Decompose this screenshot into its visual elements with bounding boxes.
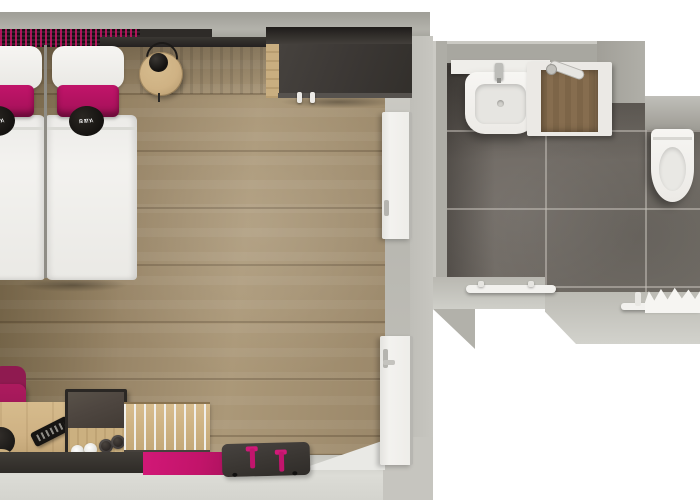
wardrobe-top-panel [266, 27, 412, 45]
bathroom-door [382, 112, 412, 239]
bedroom-right-wall-outer [410, 36, 433, 470]
pillow-text-bottom: RTY [0, 118, 5, 124]
toilet-seat [659, 147, 686, 191]
dark-cup [111, 435, 125, 449]
tray-lid [68, 392, 124, 428]
table-lamp [149, 53, 168, 72]
duvet [0, 115, 45, 280]
toilet [651, 129, 694, 202]
bathroom-notch [645, 0, 700, 96]
bed-right: SMA RTY [46, 45, 137, 280]
pink-handle [250, 448, 256, 468]
shower-wood-panel [541, 70, 598, 132]
bench-foot [232, 473, 237, 477]
wardrobe [278, 44, 412, 98]
faucet-tip [497, 78, 501, 83]
wardrobe-wood-strip [266, 44, 279, 98]
bathroom-wall-strip [645, 96, 700, 130]
white-pillow [52, 46, 124, 89]
pink-handle [279, 452, 285, 472]
duvet [46, 115, 137, 280]
bench-foot [292, 471, 297, 475]
entrance-door-lever [383, 360, 395, 365]
towel-rail-post [478, 281, 484, 287]
towel-rail-post [635, 292, 641, 306]
wall-bench [0, 452, 146, 473]
bathroom-bottom-wall-step [433, 309, 475, 349]
wardrobe-hook [310, 92, 315, 103]
wardrobe-hook [297, 92, 302, 103]
luggage-bench [222, 442, 311, 477]
bed-gap [44, 45, 47, 278]
bathroom-left-wall [433, 41, 447, 309]
bathroom-door-handle [384, 200, 389, 216]
bed-left: SMA RTY [0, 45, 45, 280]
entrance-door-handle [383, 349, 388, 368]
drain [497, 100, 504, 107]
hand-shower-head [546, 64, 557, 75]
pillow-text-bottom: RTY [79, 118, 94, 124]
toilet-cistern-line [653, 137, 692, 140]
luggage-rack [124, 402, 210, 453]
floor-plan-render: SMA RTY SMA RTY [0, 0, 700, 500]
towel-rail-post [528, 281, 534, 287]
lamp-cord [158, 93, 160, 102]
white-pillow [0, 46, 42, 89]
